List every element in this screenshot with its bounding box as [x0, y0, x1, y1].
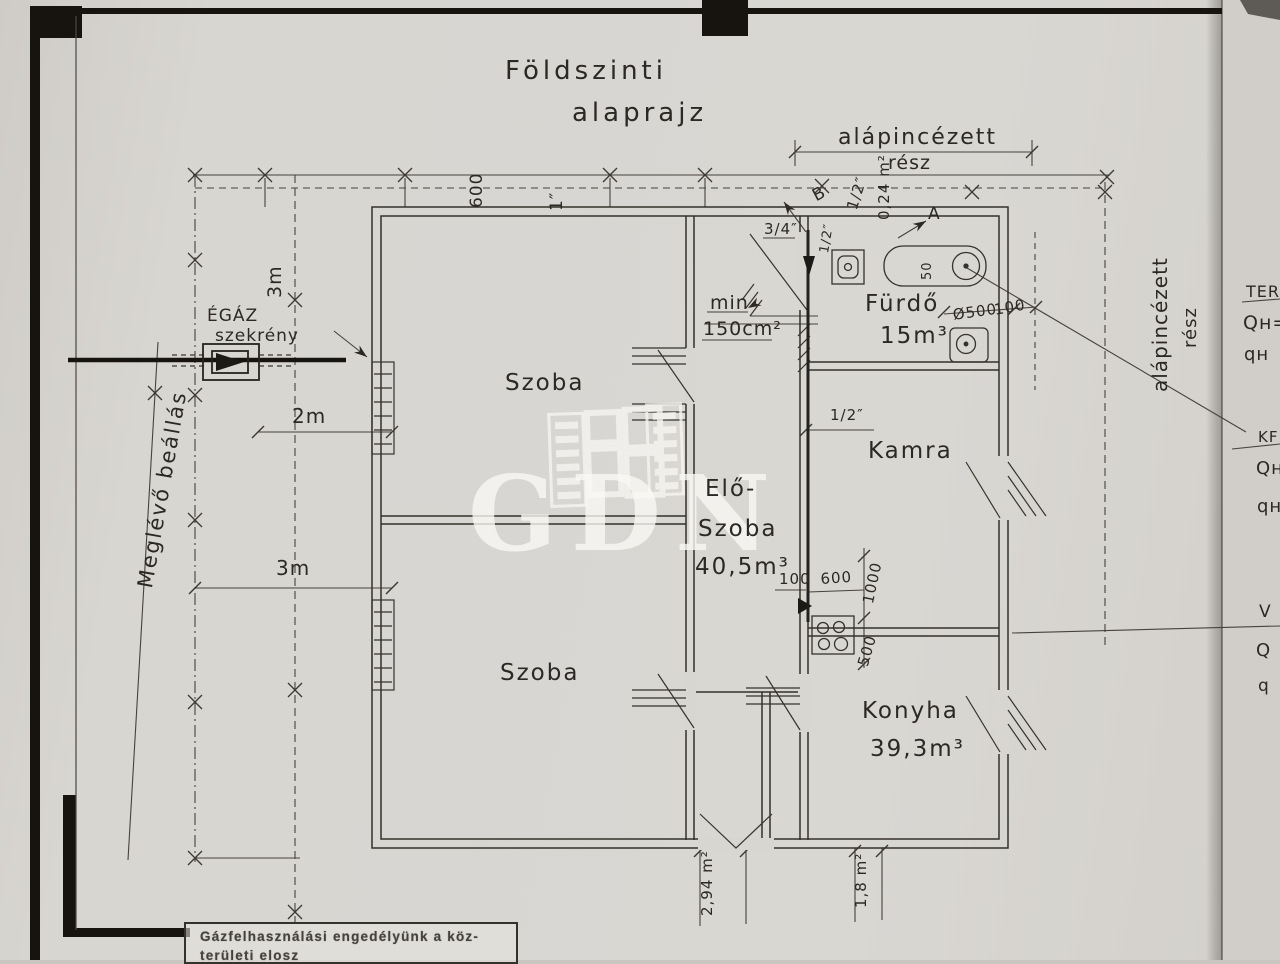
plan-title-line2: alaprajz — [572, 100, 707, 126]
room-volume-eloszoba: 40,5m³ — [695, 556, 790, 579]
vent-min-label: min — [710, 294, 749, 313]
margin-ter-heading: TER — [1246, 284, 1280, 300]
elo-100-label: 100 — [779, 572, 811, 587]
basement-right-label-line2: rész — [1182, 307, 1200, 348]
area-024-label: 0,24 m² — [877, 154, 892, 220]
basement-top-label-line1: alápincézett — [838, 127, 997, 149]
room-label-furdo: Fürdő — [865, 293, 939, 316]
room-label-szoba-top: Szoba — [505, 372, 584, 395]
room-volume-furdo: 15m³ — [880, 325, 949, 348]
bottom-294-label: 2,94 m² — [700, 850, 715, 916]
vent-150-label: 150cm² — [703, 320, 782, 339]
gas-cabinet-label-line2: szekrény — [215, 328, 299, 345]
scanned-floorplan-page: GDN Földszinti alaprajz alápincézett rés… — [0, 0, 1280, 960]
tub-50-label: 50 — [921, 261, 934, 280]
margin-kf-heading: KF — [1258, 430, 1278, 445]
margin-v-q: Q — [1256, 642, 1271, 660]
basement-top-label-line2: rész — [888, 154, 931, 173]
margin-v-heading: V — [1259, 604, 1272, 621]
dim-3m: 3m — [276, 558, 310, 578]
dim-top-600: 600 — [469, 173, 486, 208]
plan-title-line1: Földszinti — [505, 58, 667, 84]
room-label-eloszoba-line1: Elő- — [705, 478, 756, 501]
room-label-szoba-bottom: Szoba — [500, 662, 579, 685]
room-label-eloszoba-line2: Szoba — [698, 518, 777, 541]
pipe-threequarters-label: 3/4″ — [764, 222, 798, 237]
permit-stamp-line2: területi elosz — [200, 948, 299, 963]
permit-stamp-box: Gázfelhasználási engedélyünk a köz- terü… — [184, 922, 518, 964]
point-a-label: A — [928, 206, 941, 223]
dim-left-3m: 3m — [266, 265, 285, 298]
basement-right-label-line1: alápincézett — [1150, 257, 1170, 392]
margin-ter-qh2: qʜ — [1244, 346, 1269, 364]
dim-top-1in: 1″ — [549, 192, 566, 211]
kitchen-600-label: 600 — [820, 570, 853, 587]
margin-ter-qh: Qʜ= — [1243, 314, 1280, 333]
pipe-half-kamra-label: 1/2″ — [830, 408, 864, 423]
room-label-kamra: Kamra — [868, 440, 953, 463]
room-label-konyha: Konyha — [862, 700, 959, 723]
margin-kf-qh: Qʜ — [1256, 460, 1280, 478]
gas-cabinet-label-line1: ÉGÁZ — [207, 308, 258, 325]
margin-v-q2: q — [1258, 678, 1270, 695]
bottom-18-label: 1,8 m² — [854, 853, 869, 908]
margin-kf-qh2: qʜ — [1257, 498, 1280, 516]
room-volume-konyha: 39,3m³ — [870, 738, 965, 761]
dim-2m: 2m — [292, 406, 326, 426]
permit-stamp-line1: Gázfelhasználási engedélyünk a köz- — [200, 929, 479, 944]
